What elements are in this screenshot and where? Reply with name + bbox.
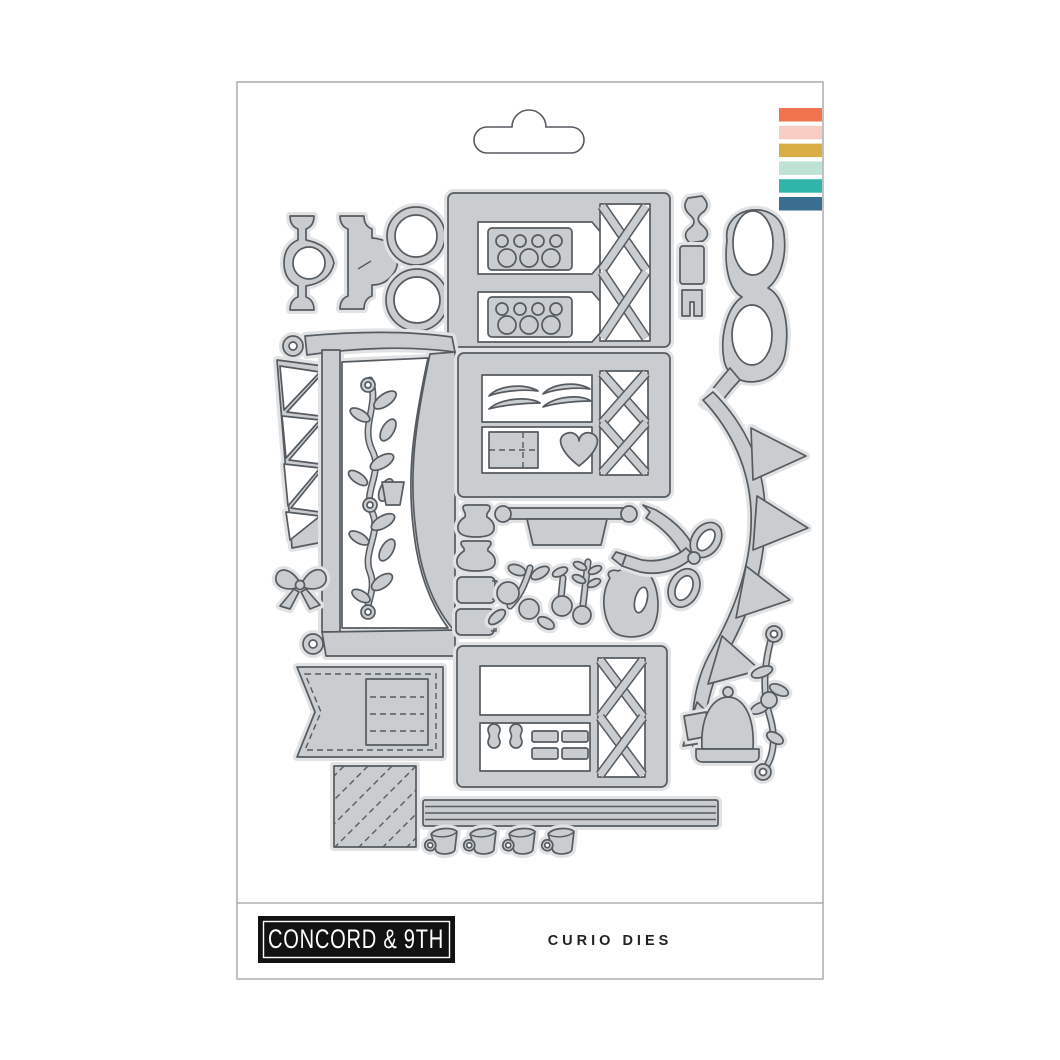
shelf-ledge-die: [423, 800, 718, 826]
color-swatch-3: [779, 161, 822, 175]
circle-frame-large-die: [386, 269, 448, 331]
color-swatch-0: [779, 108, 822, 122]
pitcher-die: [604, 568, 658, 637]
top-panel-die: [448, 193, 670, 347]
color-swatch-1: [779, 126, 822, 140]
color-swatch-2: [779, 144, 822, 158]
product-image: CONCORD & 9TH CURIO DIES: [0, 0, 1060, 1060]
stitched-banner-die: [297, 667, 443, 757]
color-swatch-4: [779, 179, 822, 193]
product-title: CURIO DIES: [548, 933, 673, 949]
bottom-panel-die: [457, 646, 667, 787]
middle-panel-die: [458, 353, 670, 497]
brand-logo-text: CONCORD & 9TH: [268, 924, 444, 954]
color-swatch-5: [779, 197, 822, 211]
circle-frame-small-die: [387, 207, 445, 265]
brand-logo-plate: CONCORD & 9TH: [258, 916, 455, 963]
